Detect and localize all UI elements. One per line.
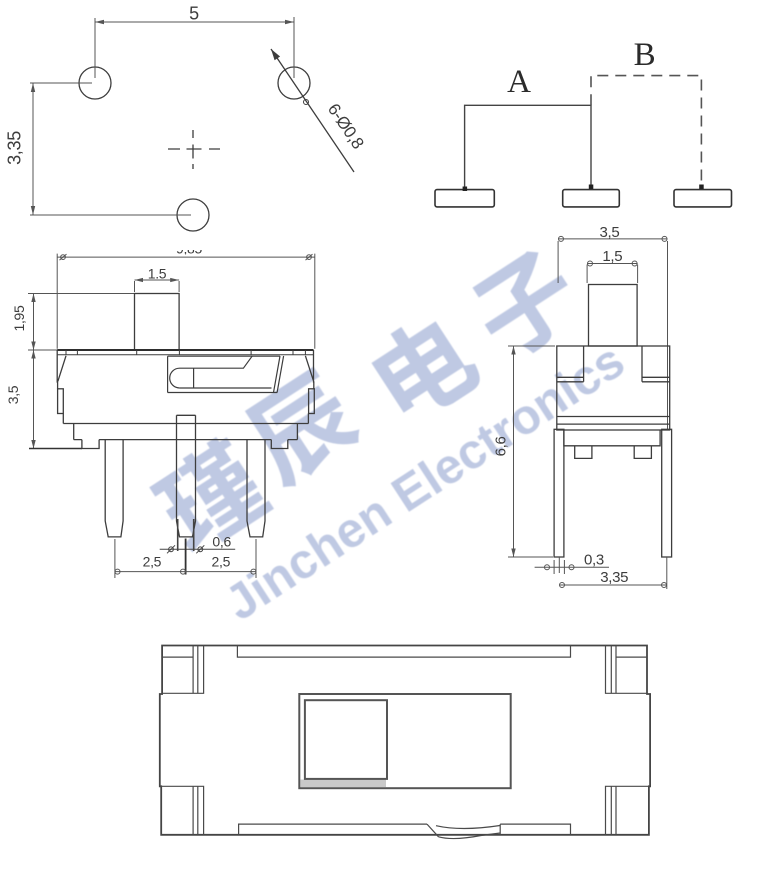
svg-text:3,5: 3,5	[5, 385, 21, 404]
svg-text:9,85: 9,85	[176, 241, 203, 257]
svg-text:A: A	[507, 64, 531, 100]
svg-text:6-Ø0,8: 6-Ø0,8	[324, 100, 368, 152]
svg-text:3,5: 3,5	[600, 224, 620, 241]
svg-text:2,5: 2,5	[143, 554, 162, 570]
svg-text:6,6: 6,6	[493, 436, 510, 456]
svg-text:3,35: 3,35	[5, 131, 25, 165]
svg-text:B: B	[634, 37, 656, 73]
svg-text:1.5: 1.5	[148, 266, 167, 282]
svg-text:3,35: 3,35	[600, 569, 628, 586]
svg-text:1,5: 1,5	[602, 248, 622, 265]
svg-text:1,95: 1,95	[11, 305, 27, 332]
svg-text:0,3: 0,3	[584, 552, 604, 569]
svg-text:5: 5	[189, 4, 199, 24]
svg-text:0,6: 0,6	[212, 534, 231, 550]
svg-text:2,5: 2,5	[212, 554, 231, 570]
